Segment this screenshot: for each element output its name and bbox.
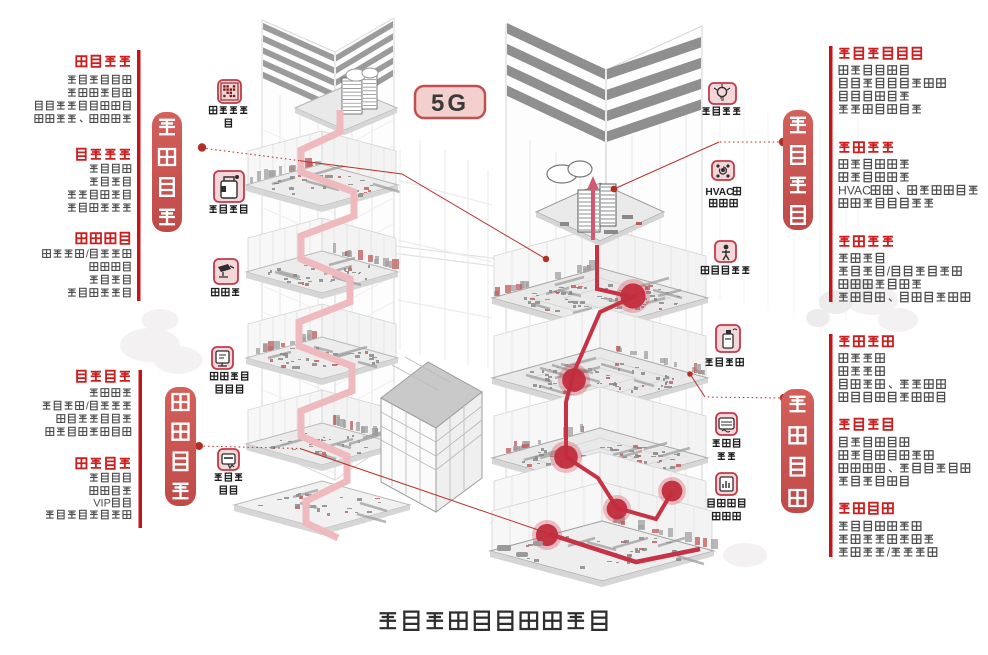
svg-text:/: /: [887, 546, 891, 560]
svg-text:VIP: VIP: [93, 498, 111, 510]
svg-text:HVAC: HVAC: [838, 184, 871, 198]
svg-text:5G: 5G: [431, 90, 469, 117]
svg-text:/: /: [887, 265, 891, 279]
svg-text:HVAC: HVAC: [705, 187, 734, 198]
